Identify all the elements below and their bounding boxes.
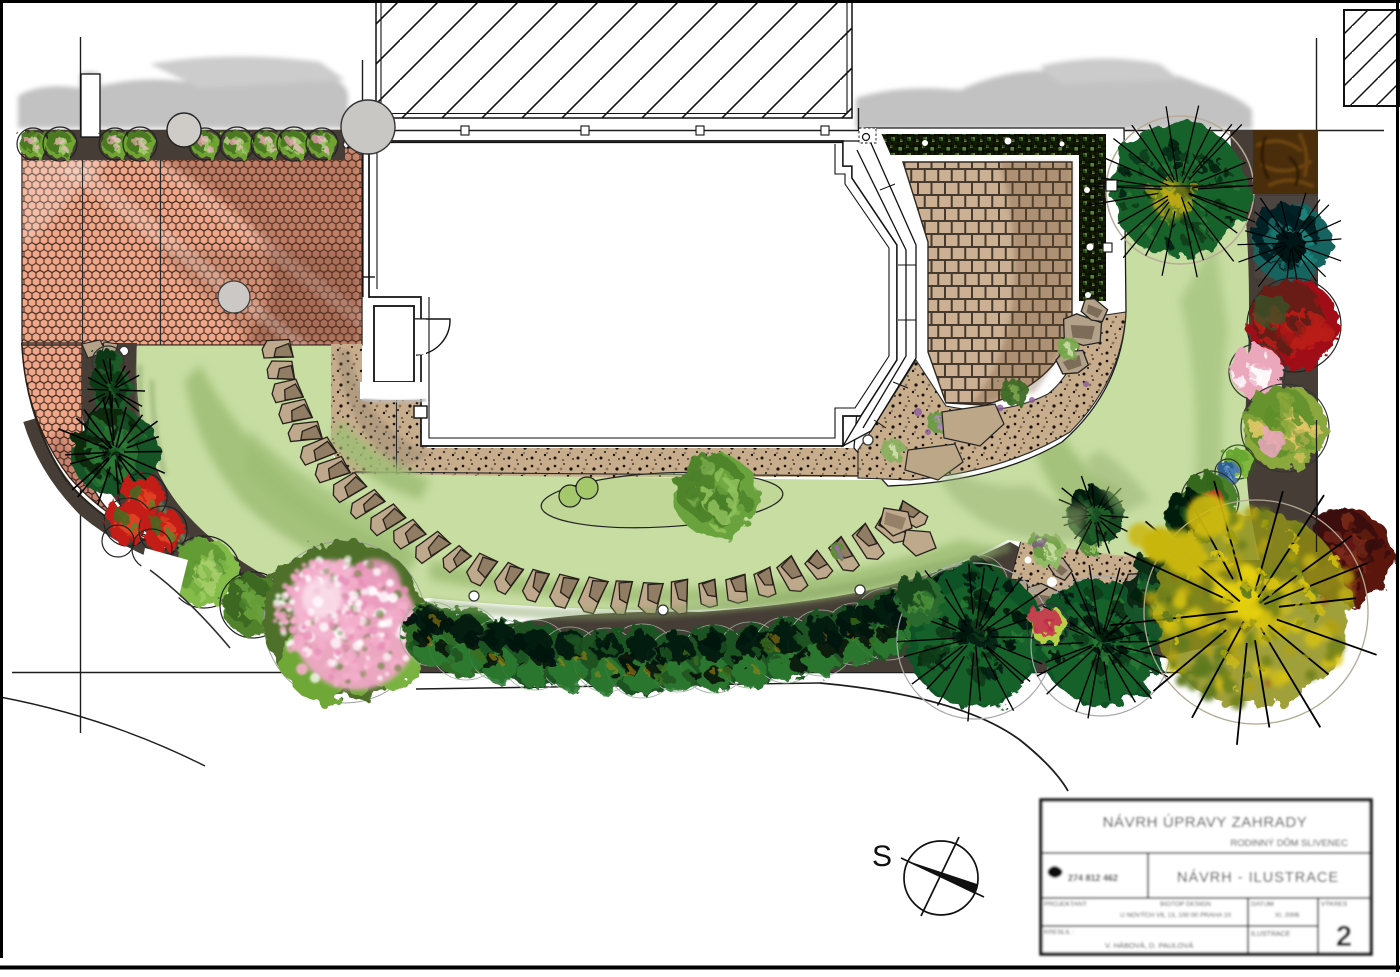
svg-text:S: S (872, 840, 892, 873)
svg-text:KRESLIL :: KRESLIL : (1044, 929, 1074, 936)
svg-text:DATUM: DATUM (1251, 901, 1274, 908)
svg-text:NÁVRH ÚPRAVY ZAHRADY: NÁVRH ÚPRAVY ZAHRADY (1103, 814, 1308, 831)
svg-text:2: 2 (1336, 921, 1352, 953)
svg-text:VÝKRES: VÝKRES (1321, 899, 1348, 908)
svg-text:RODINNÝ DŮM SLIVENEC: RODINNÝ DŮM SLIVENEC (1230, 837, 1348, 849)
svg-text:BIOTOP DESIGN: BIOTOP DESIGN (1160, 901, 1211, 908)
svg-text:274 812 462: 274 812 462 (1068, 873, 1118, 883)
svg-text:NÁVRH - ILUSTRACE: NÁVRH - ILUSTRACE (1177, 869, 1339, 886)
svg-text:PROJEKTANT:: PROJEKTANT: (1044, 901, 1088, 908)
svg-text:V. HÁBOVÁ, D. PAULOVÁ: V. HÁBOVÁ, D. PAULOVÁ (1105, 941, 1193, 950)
svg-text:XI. 2006: XI. 2006 (1275, 912, 1300, 919)
svg-text:ILUSTRACE: ILUSTRACE (1251, 931, 1291, 938)
svg-text:U NOVÝCH VIL 13, 100 00 PRAHA: U NOVÝCH VIL 13, 100 00 PRAHA 10 (1120, 910, 1231, 919)
